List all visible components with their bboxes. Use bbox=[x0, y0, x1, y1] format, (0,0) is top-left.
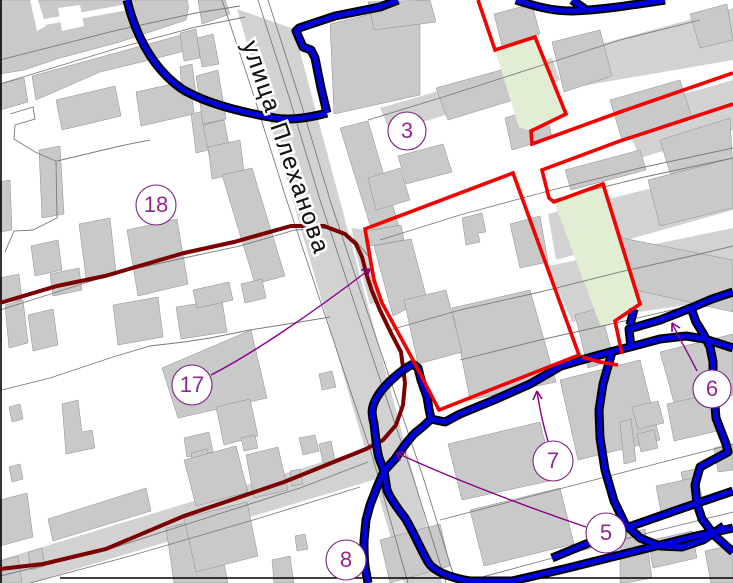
svg-text:5: 5 bbox=[600, 520, 612, 545]
svg-text:3: 3 bbox=[401, 118, 413, 143]
svg-text:18: 18 bbox=[144, 192, 168, 217]
svg-text:7: 7 bbox=[547, 448, 559, 473]
svg-text:17: 17 bbox=[180, 372, 204, 397]
svg-text:8: 8 bbox=[340, 547, 352, 572]
svg-text:6: 6 bbox=[706, 376, 718, 401]
